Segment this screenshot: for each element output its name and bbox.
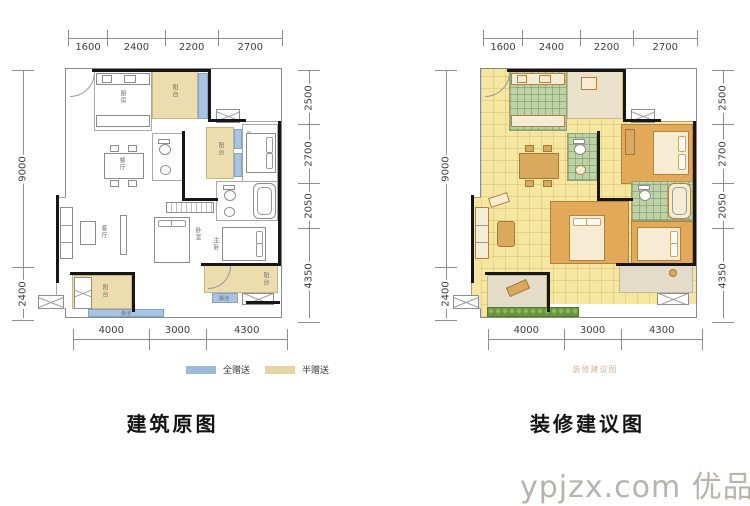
legend-label-half-gift: 半赠送 (302, 363, 329, 376)
dim-segment: 2400 (435, 267, 457, 321)
dim-segment: 1600 (483, 30, 522, 46)
dim-label: 2200 (166, 42, 218, 53)
wall (597, 198, 633, 201)
dining-table-icon (519, 153, 559, 179)
dim-segment: 2200 (165, 30, 218, 46)
dim-segment: 3000 (149, 329, 206, 350)
water-heater-icon (581, 77, 597, 90)
toilet-icon (158, 139, 170, 154)
legend-swatch-half-gift (265, 366, 295, 374)
dim-segment: 4350 (712, 228, 734, 323)
dim-segment: 9000 (12, 70, 34, 267)
dim-right-left-plan: 2500 2700 2050 4350 (298, 70, 320, 318)
dim-label: 1600 (484, 42, 522, 53)
balcony-master (619, 265, 693, 293)
plan-body-architectural: 厨房 阳台 阳台 卧室 餐厅 (65, 68, 282, 318)
dim-label: 2700 (304, 139, 315, 168)
toilet-icon (573, 139, 585, 154)
wall (547, 272, 550, 312)
wall (92, 69, 210, 72)
wall (507, 69, 625, 72)
dim-right-right-plan: 2500 2700 2050 4350 (712, 70, 734, 318)
wall (208, 119, 246, 122)
gift-strip-br1-b (234, 153, 242, 177)
dim-segment: 2400 (107, 30, 165, 46)
stove-icon (124, 75, 136, 83)
wall (471, 195, 474, 283)
dim-label: 2400 (523, 42, 580, 53)
wall (623, 69, 626, 122)
balcony-top: 阳台 (152, 71, 198, 119)
wall (246, 301, 280, 304)
dim-segment: 2500 (712, 70, 734, 124)
ac-slab-box (453, 295, 479, 309)
bathtub-icon (668, 183, 691, 219)
tv-cabinet-icon (120, 215, 127, 255)
bathtub-icon (253, 183, 276, 219)
dim-label: 3000 (150, 325, 206, 336)
wall (597, 131, 600, 201)
toilet-icon (638, 185, 650, 200)
dim-label: 2200 (581, 42, 633, 53)
chair-icon (543, 180, 552, 187)
sink-icon (575, 165, 586, 175)
wall (485, 272, 549, 275)
wall (182, 198, 218, 201)
wall (182, 131, 185, 201)
dim-top-right-plan: 1600 2400 2200 2700 (483, 30, 698, 52)
dim-segment: 4000 (488, 329, 564, 350)
plan-watermark-small: 装修建议图 (540, 364, 650, 375)
dim-segment: 4300 (206, 329, 288, 350)
dim-label: 9000 (441, 154, 452, 183)
room-label-balcony: 阳台 (217, 142, 224, 156)
sink-icon (160, 165, 171, 175)
sofa-icon (475, 207, 489, 259)
kitchen-counter-icon (96, 115, 150, 127)
wardrobe-icon (166, 202, 214, 213)
stove-icon (539, 75, 551, 83)
room-label-master: 主卧 (212, 237, 219, 251)
chair-icon (128, 180, 137, 187)
bed-icon (569, 215, 605, 261)
legend-label-full-gift: 全赠送 (223, 363, 250, 376)
dim-label: 2400 (108, 42, 165, 53)
bay-label: 飘池 (219, 296, 229, 302)
dim-left-right-plan: 9000 2400 (435, 70, 457, 318)
dim-label: 2700 (634, 42, 697, 53)
dim-label: 2500 (718, 83, 729, 112)
coffee-table-icon (497, 221, 515, 247)
bed-icon (653, 131, 689, 175)
gift-strip-bay2: 飘池 (88, 309, 164, 317)
dim-segment: 2700 (712, 124, 734, 183)
caption-left: 建筑原图 (65, 408, 280, 437)
room-label-balcony: 阳台 (171, 84, 178, 98)
sink-icon (224, 207, 235, 217)
chair-icon (525, 180, 534, 187)
dim-label: 4300 (207, 325, 287, 336)
bed-icon (154, 217, 190, 263)
coffee-table-icon (80, 221, 96, 245)
dim-bottom-right-plan: 4000 3000 4300 (488, 325, 703, 347)
dim-label: 2050 (718, 191, 729, 220)
dim-segment: 1600 (68, 30, 107, 46)
site-watermark: ypjzx.com 优品家 (520, 462, 750, 506)
dim-segment: 2700 (218, 30, 283, 46)
wall (693, 121, 696, 265)
dim-label: 2050 (304, 191, 315, 220)
wall (132, 272, 135, 312)
gift-strip-br1-a (234, 129, 242, 149)
pot-icon (669, 269, 677, 277)
chair-icon (110, 145, 119, 152)
dim-left-left-plan: 9000 2400 (12, 70, 34, 318)
dim-label: 4300 (622, 325, 702, 336)
dim-label: 4000 (489, 325, 564, 336)
dim-segment: 2400 (12, 267, 34, 321)
bay-label: 飘池 (121, 311, 131, 317)
planter-box (74, 277, 92, 309)
legend: 全赠送 半赠送 (186, 363, 337, 376)
room-label-balcony: 阳台 (262, 272, 269, 286)
entry-door-arc (70, 72, 95, 97)
dim-label: 1600 (69, 42, 107, 53)
kitchen-counter-icon (511, 115, 565, 127)
room-label-dining: 餐厅 (118, 157, 125, 171)
chair-icon (110, 180, 119, 187)
ac-slab-box (38, 295, 64, 309)
dim-segment: 2200 (580, 30, 633, 46)
dim-top-left-plan: 1600 2400 2200 2700 (68, 30, 283, 52)
bed-icon (222, 227, 266, 261)
dim-label: 3000 (565, 325, 621, 336)
dim-segment: 2050 (712, 183, 734, 228)
dim-segment: 2400 (522, 30, 580, 46)
balcony-bedroom1: 阳台 (206, 127, 234, 179)
dim-label: 2700 (219, 42, 282, 53)
dim-segment: 2500 (298, 70, 320, 124)
room-label-living: 客厅 (100, 225, 107, 239)
caption-right: 装修建议图 (480, 408, 695, 437)
gift-strip-bay: 飘池 (212, 293, 238, 303)
dim-segment: 3000 (564, 329, 621, 350)
legend-swatch-full-gift (186, 366, 216, 374)
bed-icon (246, 133, 276, 173)
chair-icon (128, 145, 137, 152)
chair-icon (525, 145, 534, 152)
room-label-balcony: 阳台 (101, 284, 108, 298)
dim-label: 4350 (718, 261, 729, 290)
dim-segment: 4300 (621, 329, 703, 350)
kitchen-sink-icon (102, 75, 112, 83)
plan-body-decorated (480, 68, 697, 318)
wall (56, 195, 59, 283)
wall (623, 119, 661, 122)
bed-icon (637, 227, 681, 261)
toilet-icon (223, 185, 235, 200)
wardrobe-icon (625, 129, 635, 155)
wall (208, 69, 211, 122)
dim-segment: 4350 (298, 228, 320, 323)
wall (201, 263, 281, 266)
dim-segment: 2050 (298, 183, 320, 228)
wall (70, 272, 134, 275)
dim-label: 2400 (18, 279, 29, 308)
gift-strip-top (198, 73, 208, 119)
bay-window-box (657, 293, 689, 305)
dim-label: 2700 (718, 139, 729, 168)
room-label-bedroom: 卧室 (194, 227, 201, 241)
dim-label: 4000 (74, 325, 149, 336)
dim-label: 2400 (441, 279, 452, 308)
dim-segment: 4000 (73, 329, 149, 350)
dim-label: 2500 (304, 83, 315, 112)
kitchen-sink-icon (517, 75, 527, 83)
chair-icon (543, 145, 552, 152)
room-label-kitchen: 厨房 (119, 90, 126, 104)
sofa-icon (60, 207, 73, 259)
dim-label: 4350 (304, 261, 315, 290)
dim-segment: 2700 (633, 30, 698, 46)
wall (616, 263, 696, 266)
dim-bottom-left-plan: 4000 3000 4300 (73, 325, 288, 347)
dim-segment: 2700 (298, 124, 320, 183)
planter-greens (487, 307, 579, 317)
wall (278, 121, 281, 265)
dim-label: 9000 (18, 154, 29, 183)
dim-segment: 9000 (435, 70, 457, 267)
